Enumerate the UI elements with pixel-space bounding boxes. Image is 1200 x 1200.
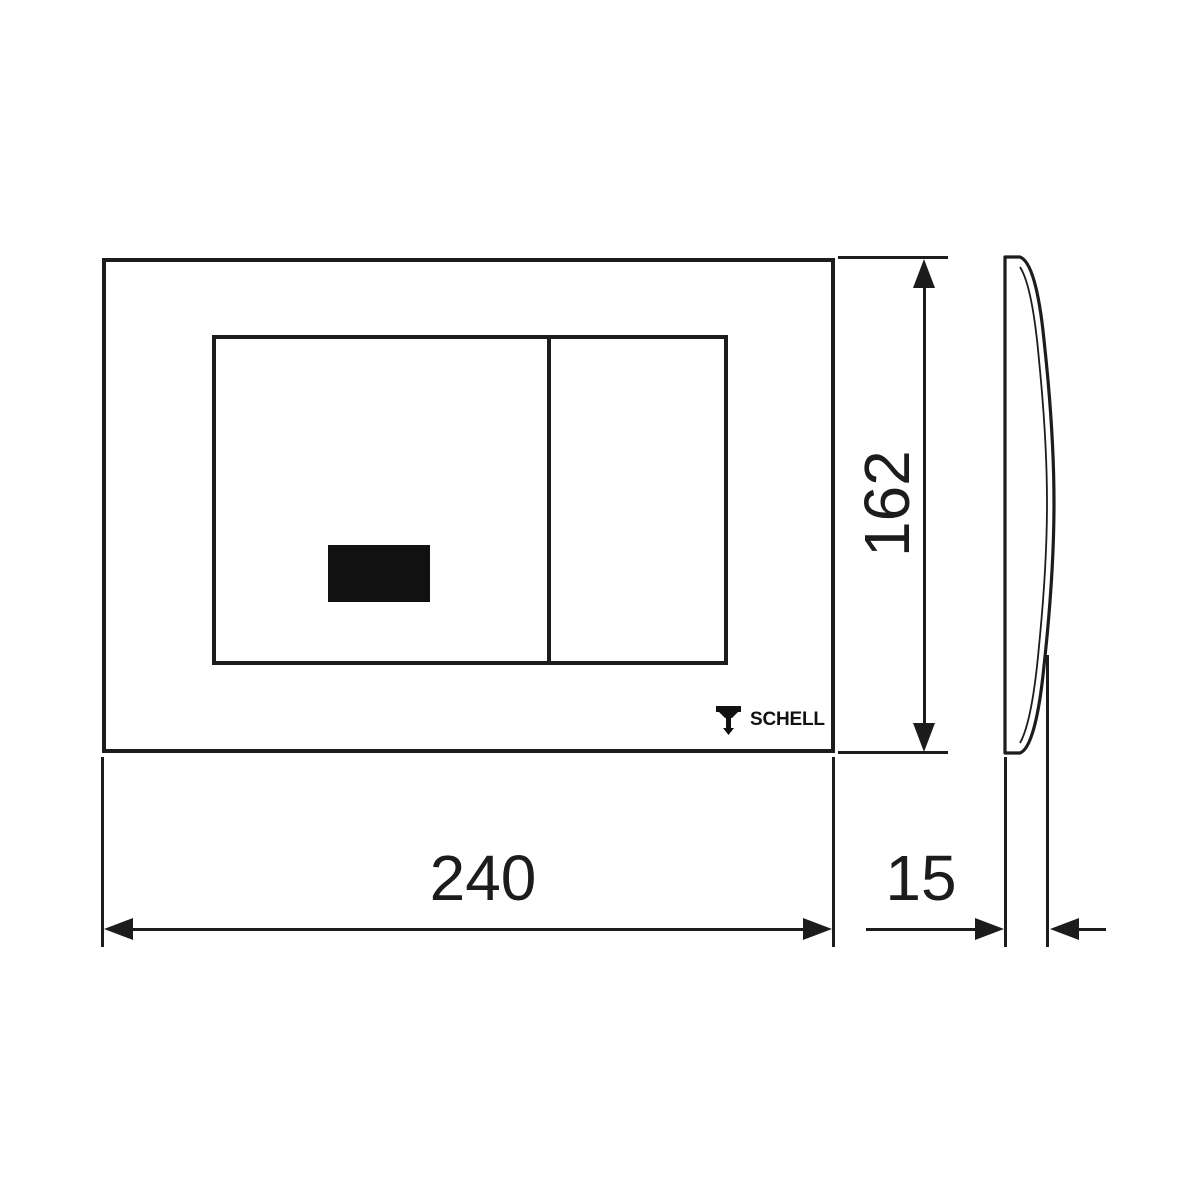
dim-depth-arrow-right-icon — [975, 918, 1004, 940]
dim-height-line — [923, 282, 926, 728]
dim-height-arrow-up-icon — [913, 259, 935, 288]
dim-height-label: 162 — [855, 457, 915, 557]
side-view — [990, 245, 1070, 770]
technical-drawing-canvas: SCHELL 162 240 15 — [0, 0, 1200, 1200]
dim-depth-line-left-segment — [866, 928, 978, 931]
dim-depth-extension-line-right — [1046, 655, 1049, 947]
dim-width-arrow-right-icon — [803, 918, 832, 940]
schell-funnel-icon — [716, 706, 742, 736]
button-frame — [212, 335, 728, 665]
dim-width-arrow-left-icon — [104, 918, 133, 940]
dim-depth-arrow-left-icon — [1050, 918, 1079, 940]
ir-sensor-window — [328, 545, 430, 602]
dim-width-extension-line-right — [832, 757, 835, 947]
button-divider-line — [547, 335, 551, 665]
dim-depth-extension-line-left — [1004, 757, 1007, 947]
dim-height-arrow-down-icon — [913, 723, 935, 752]
dim-depth-label: 15 — [851, 846, 991, 910]
dim-depth-line-right-segment — [1079, 928, 1106, 931]
dim-width-line — [130, 928, 807, 931]
schell-logo-text: SCHELL — [750, 709, 825, 731]
dim-width-label: 240 — [378, 846, 588, 910]
